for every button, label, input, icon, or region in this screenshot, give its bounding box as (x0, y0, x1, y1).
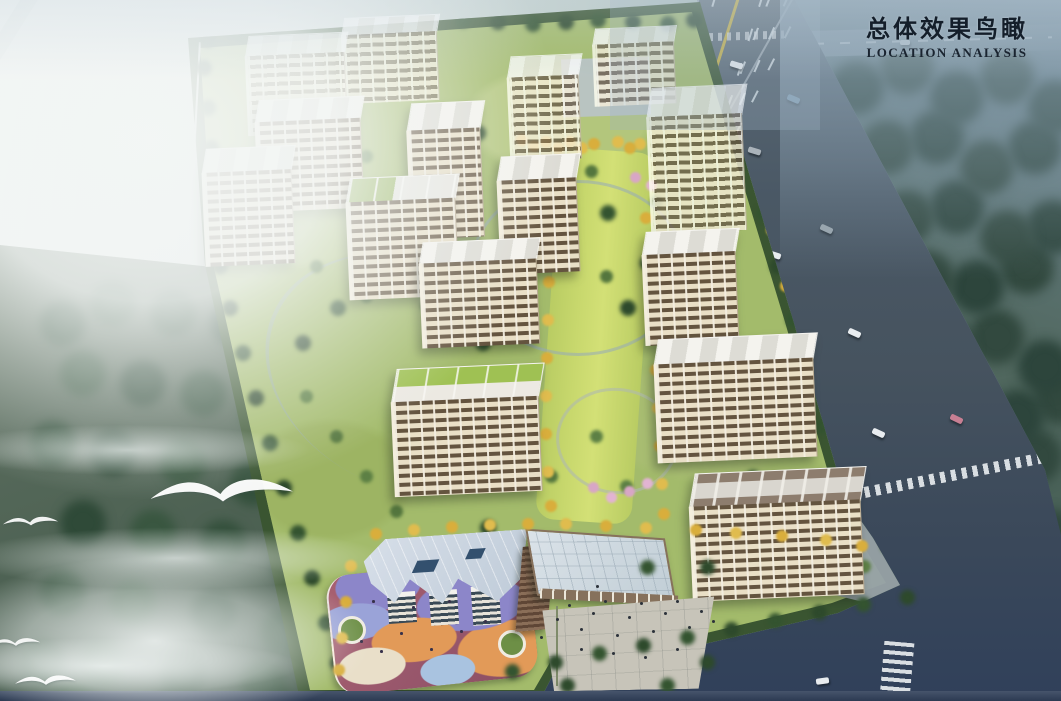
residential-tower (641, 228, 740, 346)
page-title: 总体效果鸟瞰 (866, 9, 1028, 44)
car (816, 677, 830, 685)
car (747, 146, 761, 156)
flying-bird-icon (0, 634, 42, 649)
car (847, 328, 861, 339)
intersection-crosswalk (853, 451, 1051, 500)
tower-facade (646, 113, 747, 234)
residential-slab (687, 466, 864, 601)
title-block: 总体效果鸟瞰 LOCATION ANALYSIS (866, 9, 1028, 61)
flying-bird-icon (148, 468, 298, 510)
plaza-flagpole (556, 606, 558, 686)
car (949, 413, 963, 424)
tower-facade (653, 357, 817, 463)
aerial-rendering-canvas: 总体效果鸟瞰 LOCATION ANALYSIS (0, 0, 1061, 701)
flying-bird-icon (14, 670, 78, 689)
playground-tree-planter (498, 630, 526, 658)
tower-facade (642, 251, 740, 346)
commercial-plaza (542, 597, 716, 692)
tower-facade (689, 500, 865, 602)
page-subtitle: LOCATION ANALYSIS (866, 45, 1028, 61)
roof-skylight (465, 548, 486, 559)
flying-bird-icon (2, 512, 60, 529)
car (871, 428, 885, 439)
residential-slab (652, 333, 817, 464)
